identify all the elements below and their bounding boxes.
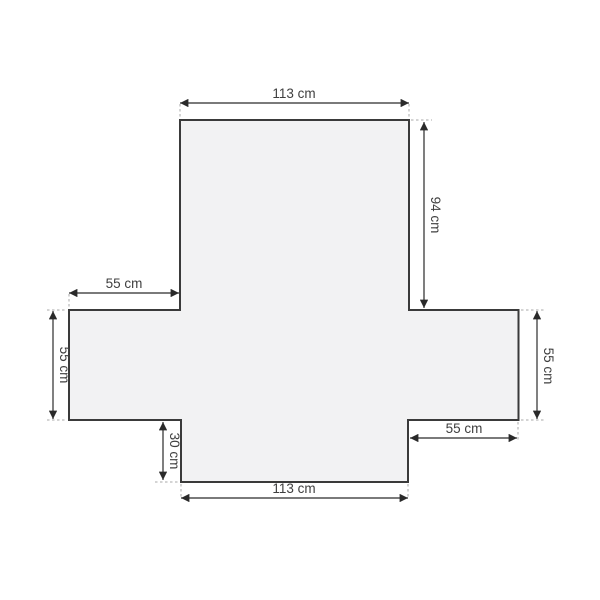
right-arm-height-dimension-label: 55 cm xyxy=(541,348,556,385)
left-arm-height-dimension-label: 55 cm xyxy=(57,347,72,384)
front-skirt-dimension-label: 30 cm xyxy=(167,433,182,470)
left-arm-width-dimension-label: 55 cm xyxy=(106,276,143,291)
dimension-diagram: 113 cm 94 cm 55 cm 55 cm 55 cm 55 cm 30 … xyxy=(0,0,600,600)
bottom-width-dimension-label: 113 cm xyxy=(272,481,315,496)
diagram-canvas: 113 cm 94 cm 55 cm 55 cm 55 cm 55 cm 30 … xyxy=(0,0,600,600)
back-height-dimension-label: 94 cm xyxy=(428,197,443,234)
right-arm-width-dimension-label: 55 cm xyxy=(446,421,483,436)
top-width-dimension-label: 113 cm xyxy=(272,86,315,101)
